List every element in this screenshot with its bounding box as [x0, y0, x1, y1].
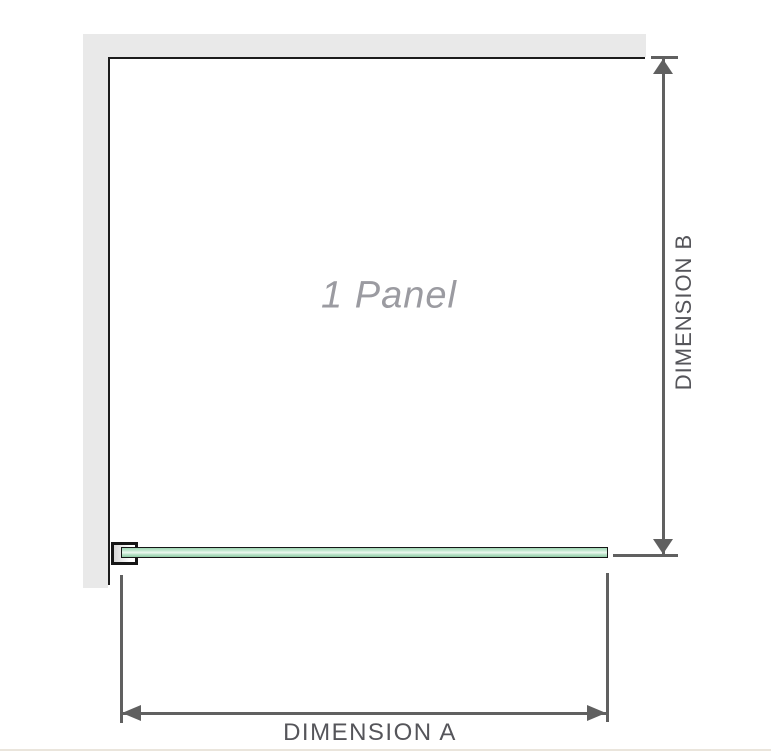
dimension-a-label: DIMENSION A [283, 719, 457, 747]
footer-divider [0, 749, 771, 751]
dimension-b-label: DIMENSION B [671, 234, 697, 390]
glass-panel [121, 547, 608, 558]
dimension-a-line [122, 712, 607, 715]
arrow-right-icon [587, 705, 606, 721]
dimension-b-line [662, 59, 665, 554]
wall-left [83, 34, 108, 588]
panel-outline-top [108, 57, 645, 59]
arrow-up-icon [653, 59, 673, 74]
arrow-left-icon [122, 705, 141, 721]
dimension-b-tick-bottom [613, 554, 678, 557]
shower-panel-diagram: 1 Panel DIMENSION B DIMENSION A [0, 0, 771, 755]
panel-outline-left [108, 57, 110, 585]
panel-label: 1 Panel [321, 275, 457, 318]
arrow-down-icon [653, 539, 673, 554]
wall-top [83, 34, 646, 57]
dimension-a-extension-left [120, 575, 123, 723]
dimension-a-extension-right [606, 573, 609, 722]
